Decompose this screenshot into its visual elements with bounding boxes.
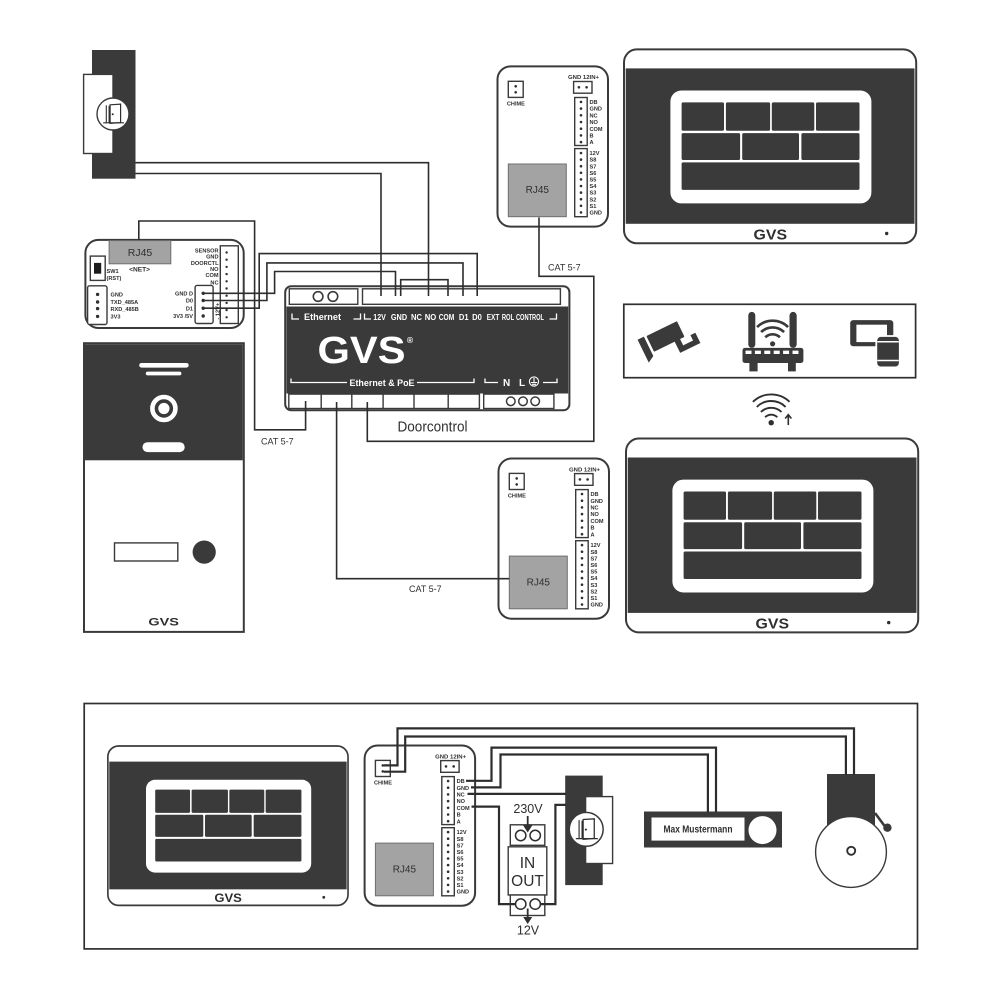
svg-text:230V: 230V: [513, 802, 543, 816]
svg-text:Ethernet: Ethernet: [304, 312, 342, 323]
svg-text:SW1: SW1: [107, 269, 119, 275]
svg-text:(RST): (RST): [107, 276, 122, 282]
svg-text:ROL: ROL: [502, 313, 514, 322]
svg-text:NO: NO: [425, 313, 437, 322]
svg-text:CAT 5-7: CAT 5-7: [261, 437, 294, 447]
svg-text:Doorcontrol: Doorcontrol: [398, 419, 468, 436]
svg-text:GVS: GVS: [318, 330, 406, 372]
svg-text:GVS: GVS: [148, 617, 179, 629]
svg-text:<NET>: <NET>: [129, 266, 150, 273]
svg-text:GND: GND: [391, 313, 407, 322]
svg-text:12V: 12V: [517, 924, 540, 938]
svg-text:NO: NO: [210, 267, 219, 273]
svg-text:3V3: 3V3: [111, 315, 121, 321]
svg-text:Max Mustermann: Max Mustermann: [664, 824, 733, 836]
svg-text:IN: IN: [520, 855, 536, 872]
svg-text:RJ45: RJ45: [128, 247, 153, 259]
svg-text:TXD_485A: TXD_485A: [111, 300, 139, 306]
svg-text:COM: COM: [439, 313, 455, 322]
svg-text:- 12V+: - 12V+: [216, 302, 222, 319]
svg-text:D1: D1: [186, 306, 193, 312]
svg-text:RXD_485B: RXD_485B: [111, 307, 139, 313]
svg-text:OUT: OUT: [511, 873, 544, 890]
svg-text:Ethernet & PoE: Ethernet & PoE: [350, 378, 415, 389]
svg-text:CAT 5-7: CAT 5-7: [409, 584, 442, 594]
svg-text:NC: NC: [411, 313, 422, 322]
svg-text:D0: D0: [472, 313, 482, 322]
svg-text:CAT 5-7: CAT 5-7: [548, 263, 581, 273]
svg-text:®: ®: [407, 335, 414, 345]
svg-text:D0: D0: [186, 299, 193, 305]
svg-text:N: N: [503, 378, 510, 389]
svg-text:GND: GND: [206, 255, 218, 261]
svg-text:GND: GND: [111, 293, 123, 299]
svg-text:COM: COM: [205, 273, 218, 279]
svg-text:CONTROL: CONTROL: [516, 313, 544, 322]
svg-text:12V: 12V: [373, 313, 386, 322]
svg-text:3V3 /5V: 3V3 /5V: [173, 314, 193, 320]
svg-text:GND D: GND D: [175, 292, 193, 298]
svg-text:L: L: [519, 378, 525, 389]
svg-text:D1: D1: [459, 313, 469, 322]
svg-text:EXT: EXT: [487, 313, 500, 322]
